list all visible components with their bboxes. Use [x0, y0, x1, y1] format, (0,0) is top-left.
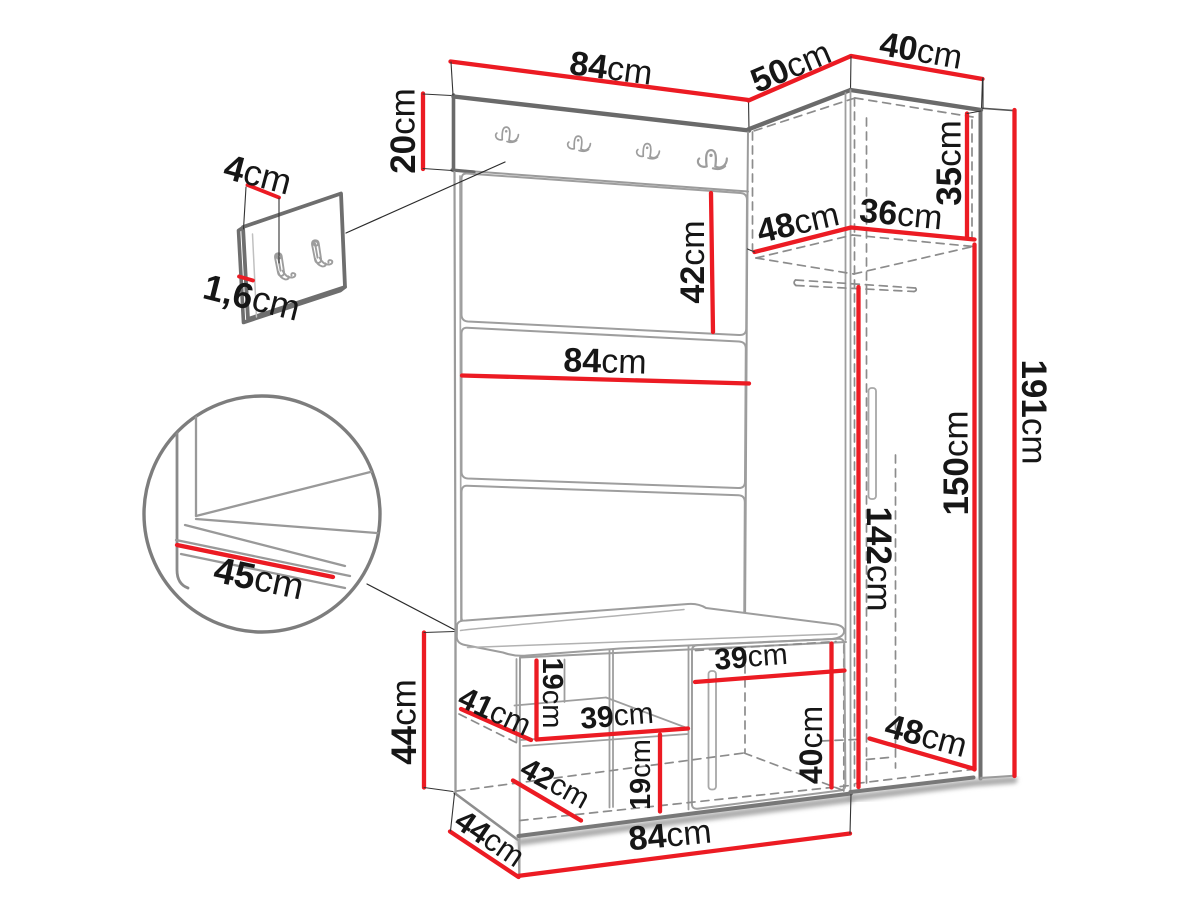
svg-text:84cm: 84cm — [627, 813, 713, 859]
svg-text:42cm: 42cm — [674, 220, 712, 303]
svg-text:19cm: 19cm — [625, 739, 657, 810]
svg-text:40cm: 40cm — [793, 706, 829, 784]
svg-text:19cm: 19cm — [536, 658, 568, 729]
svg-text:44cm: 44cm — [385, 679, 424, 765]
svg-text:35cm: 35cm — [930, 120, 969, 206]
svg-text:39cm: 39cm — [579, 697, 655, 735]
svg-text:84cm: 84cm — [563, 341, 647, 381]
svg-text:150cm: 150cm — [937, 410, 976, 515]
svg-text:36cm: 36cm — [858, 192, 944, 238]
svg-text:191cm: 191cm — [1015, 359, 1054, 464]
svg-text:142cm: 142cm — [860, 506, 899, 611]
svg-text:20cm: 20cm — [384, 88, 423, 174]
svg-text:39cm: 39cm — [713, 638, 789, 676]
